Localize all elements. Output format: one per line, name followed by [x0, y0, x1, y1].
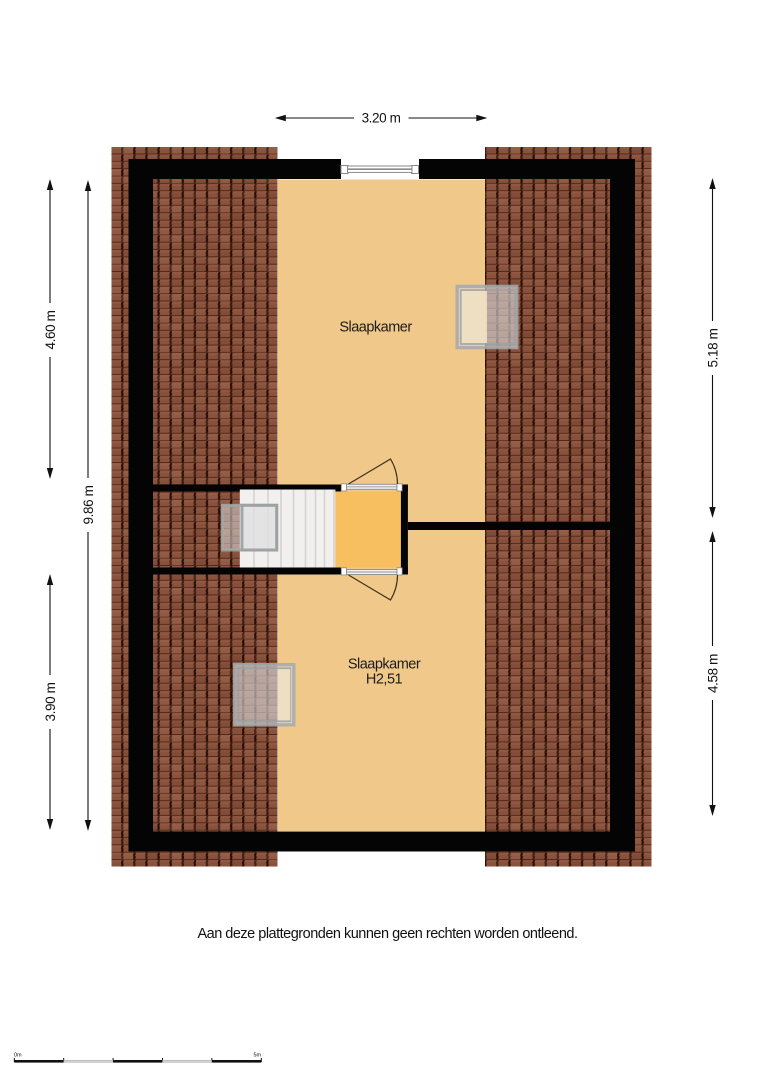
svg-text:9.86 m: 9.86 m: [81, 485, 96, 524]
svg-text:0m: 0m: [14, 1053, 22, 1059]
svg-text:Slaapkamer: Slaapkamer: [348, 657, 421, 673]
svg-text:5m: 5m: [254, 1053, 262, 1059]
svg-text:3.20 m: 3.20 m: [362, 111, 401, 126]
svg-text:Aan deze plattegronden kunnen: Aan deze plattegronden kunnen geen recht…: [197, 926, 577, 942]
svg-text:Slaapkamer: Slaapkamer: [339, 320, 412, 336]
svg-text:3.90 m: 3.90 m: [43, 682, 58, 721]
svg-text:5.18 m: 5.18 m: [706, 328, 721, 367]
svg-text:4.60 m: 4.60 m: [43, 310, 58, 349]
svg-text:4.58 m: 4.58 m: [706, 654, 721, 693]
svg-text:H2,51: H2,51: [366, 672, 403, 688]
